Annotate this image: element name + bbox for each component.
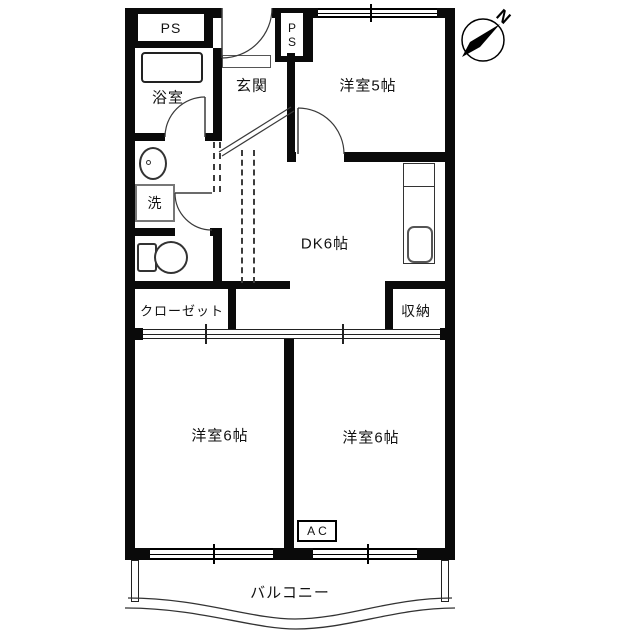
window-glass-line: [318, 13, 437, 14]
room-label-western-room-6-left: 洋室6帖: [191, 425, 248, 446]
wall: [437, 8, 455, 18]
wall: [417, 548, 455, 560]
hall-boundary-dashed: [253, 150, 255, 283]
sliding-door-track: [135, 329, 448, 339]
wall: [228, 281, 236, 332]
room-label-ps-top: PS: [161, 20, 182, 36]
room-label-entrance: 玄関: [236, 75, 268, 96]
bathtub: [141, 52, 203, 83]
floor-plan: PS PS: [0, 0, 640, 640]
sliding-door-endcap: [135, 328, 143, 340]
wall: [344, 152, 455, 162]
sliding-door-line: [135, 334, 448, 335]
window: [150, 548, 273, 560]
balcony-rail: [131, 560, 139, 602]
wall: [125, 548, 152, 560]
kitchen-counter: [403, 163, 435, 264]
toilet-bowl: [154, 241, 188, 274]
wall: [128, 133, 165, 141]
compass-needle-icon: [462, 24, 500, 57]
room-label-storage: 収納: [401, 301, 431, 321]
sliding-door-tick: [205, 324, 207, 344]
window: [313, 548, 417, 560]
entrance-step: [222, 55, 271, 68]
window-tick: [367, 544, 369, 564]
balcony-edge-line: [125, 608, 455, 629]
hall-boundary-dashed: [241, 150, 243, 283]
window: [318, 8, 437, 18]
air-conditioner-label: AC: [307, 524, 330, 538]
kitchen-counter-divider: [404, 186, 434, 187]
wall: [213, 228, 222, 285]
room-label-laundry: 洗: [148, 193, 163, 213]
air-conditioner-box: AC: [297, 520, 337, 542]
sliding-door-tick: [342, 324, 344, 344]
western-room5-door-arc: [298, 108, 344, 154]
room-label-dk: DK6帖: [301, 233, 349, 254]
wall: [287, 53, 295, 152]
sliding-door-endcap: [440, 328, 448, 340]
wall: [287, 152, 296, 162]
room-label-western-room-6-right: 洋室6帖: [342, 427, 399, 448]
washbasin: [139, 147, 167, 180]
compass-circle: [462, 19, 504, 61]
wall: [205, 133, 222, 141]
room-label-western-room-5: 洋室5帖: [339, 75, 396, 96]
window-tick: [370, 4, 372, 22]
window-tick: [213, 544, 215, 564]
hall-boundary-dashed: [219, 142, 221, 192]
wall: [284, 332, 294, 548]
kitchen-sink: [407, 226, 433, 263]
wall: [385, 281, 448, 289]
window-glass-line: [313, 554, 417, 555]
compass-north-label: N: [492, 5, 514, 27]
hall-boundary-dashed: [213, 142, 215, 192]
window-glass-line: [150, 554, 273, 555]
wall: [385, 281, 393, 332]
washroom-door-arc: [175, 193, 212, 230]
washbasin-drain: [146, 160, 151, 165]
wall: [128, 281, 290, 289]
balcony-rail: [441, 560, 449, 602]
entrance-diagonal-step: [219, 107, 291, 152]
line-overlay: N: [0, 0, 640, 640]
room-label-bathroom: 浴室: [152, 87, 184, 108]
entrance-door-arc: [222, 8, 272, 58]
wall: [128, 228, 175, 236]
wall: [273, 548, 313, 560]
entrance-diagonal-step: [222, 111, 294, 156]
room-label-ps-shaft: PS: [281, 13, 303, 56]
wall: [213, 48, 222, 140]
room-label-balcony: バルコニー: [250, 582, 330, 603]
room-label-closet: クローゼット: [140, 301, 224, 320]
